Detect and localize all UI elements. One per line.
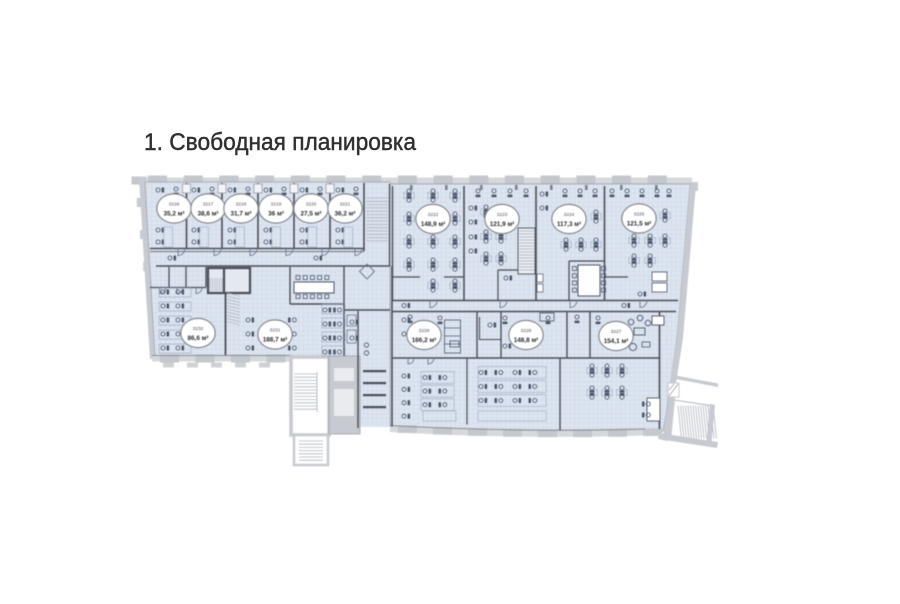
svg-text:3224: 3224: [564, 212, 575, 218]
svg-text:121,5 м²: 121,5 м²: [627, 221, 652, 228]
svg-text:3221: 3221: [340, 201, 351, 207]
svg-text:35,2 м²: 35,2 м²: [163, 211, 184, 218]
svg-text:148,8 м²: 148,8 м²: [514, 337, 539, 344]
svg-text:3231: 3231: [270, 327, 281, 333]
svg-text:166,2 м²: 166,2 м²: [412, 337, 437, 344]
svg-text:3227: 3227: [611, 329, 622, 335]
svg-text:3228: 3228: [521, 328, 532, 334]
svg-text:36 м²: 36 м²: [268, 211, 284, 218]
svg-text:3222: 3222: [428, 212, 439, 218]
svg-text:3229: 3229: [419, 328, 430, 334]
svg-text:3223: 3223: [497, 212, 508, 218]
svg-text:3232: 3232: [193, 326, 204, 332]
svg-text:38,6 м²: 38,6 м²: [197, 211, 218, 218]
svg-text:3218: 3218: [236, 201, 247, 207]
svg-text:3219: 3219: [271, 201, 282, 207]
svg-text:3220: 3220: [306, 201, 317, 207]
svg-text:121,9 м²: 121,9 м²: [490, 221, 515, 228]
svg-text:3225: 3225: [634, 211, 645, 217]
svg-text:188,7 м²: 188,7 м²: [263, 337, 288, 344]
svg-text:3217: 3217: [203, 201, 214, 207]
svg-text:86,6 м²: 86,6 м²: [187, 335, 208, 342]
svg-text:36,2 м²: 36,2 м²: [334, 211, 355, 218]
svg-text:154,1 м²: 154,1 м²: [604, 338, 629, 345]
svg-text:1. Свободная планировка: 1. Свободная планировка: [144, 129, 417, 156]
svg-text:3216: 3216: [169, 201, 180, 207]
svg-text:31,7 м²: 31,7 м²: [230, 211, 251, 218]
svg-text:117,3 м²: 117,3 м²: [557, 221, 581, 228]
svg-text:148,9 м²: 148,9 м²: [421, 221, 446, 228]
svg-text:27,5 м²: 27,5 м²: [300, 211, 321, 218]
